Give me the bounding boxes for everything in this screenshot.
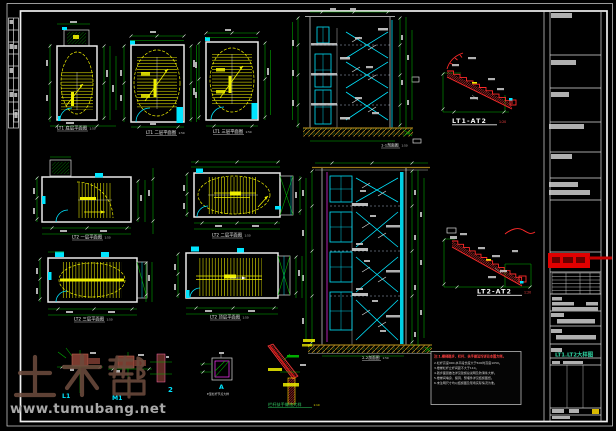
watermark-char-tu — [16, 357, 54, 395]
detail-lt1-at2 — [442, 53, 517, 114]
detail-scale-lt2-at2: 1:20 — [524, 291, 531, 295]
plan-label-p3: LT1 三层平面图 — [213, 129, 243, 135]
cad-sheet: LT1 底层平面图 1:50 LT1 二层平面图 1:50 LT1 三层平面图 … — [0, 0, 616, 431]
plan-lt2-level1 — [33, 157, 155, 234]
watermark-url-text: www.tumubang.net — [10, 401, 166, 417]
detail-label-lt1-at2: LT1-AT2 — [452, 118, 487, 125]
plan-lt1-level1 — [46, 21, 116, 128]
detail-scale-handrail: 1:10 — [314, 403, 320, 407]
detail-handrail — [268, 339, 315, 404]
detail-node-a — [200, 352, 232, 380]
plan-scale-p5: 1:50 — [245, 234, 251, 238]
section-scale-s2: 1:50 — [383, 356, 389, 360]
fold-marks-strip — [9, 18, 19, 128]
section-label-s1: 1-1剖面图 — [381, 143, 399, 148]
plan-scale-p4: 1:50 — [105, 236, 111, 240]
plan-lt2-level3 — [36, 252, 152, 316]
section-1 — [292, 8, 421, 143]
detail-label-lt2-at2: LT2-AT2 — [477, 289, 512, 296]
title-block — [544, 11, 612, 422]
section-label-s2: 2-2剖面图 — [362, 355, 380, 360]
plan-scale-p7: 1:50 — [243, 316, 249, 320]
plan-lt2-level2 — [183, 161, 302, 230]
plan-lt1-level2 — [120, 31, 197, 129]
detail-label-handrail: 栏杆扶手做法大样 — [268, 401, 302, 408]
red-stamp — [548, 253, 612, 268]
plan-scale-p3: 1:50 — [246, 130, 252, 134]
plan-label-p2: LT1 二层平面图 — [146, 130, 176, 136]
detail-caption-a: E型栏杆节点大样 — [207, 391, 229, 396]
detail-tag-l1: L1 — [62, 393, 70, 400]
detail-scale-lt1-at2: 1:20 — [499, 120, 506, 124]
plan-label-p7: LT2 顶层平面图 — [210, 315, 240, 321]
plan-lt2-top-level — [174, 247, 302, 315]
plan-scale-p6: 1:50 — [107, 318, 113, 322]
notes-title: 注:1.楼梯踏步、栏杆、扶手做法均详见本图大样。 — [434, 354, 609, 359]
plan-label-p6: LT2 三层平面图 — [74, 317, 104, 323]
detail-tag-2: 2 — [168, 386, 173, 394]
section-2 — [302, 162, 432, 357]
plan-scale-p2: 1:50 — [179, 131, 185, 135]
plan-label-p1: LT1 底层平面图 — [57, 125, 87, 132]
plan-label-p5: LT2 二层平面图 — [212, 233, 242, 239]
section-scale-s1: 1:50 — [402, 144, 408, 148]
plan-lt1-level3 — [195, 29, 271, 128]
plan-label-p4: LT2 一层平面图 — [72, 235, 102, 241]
plan-scale-p1: 1:50 — [90, 127, 96, 131]
watermark-brand — [16, 356, 144, 397]
detail-lt2-at2 — [443, 228, 536, 289]
detail-tag-a: A — [219, 384, 224, 391]
notes-body: 2.栏杆高度900,水平段长度大于500时高度1050。 3.楼梯栏杆立杆间距不… — [434, 361, 610, 386]
detail-post-node-2 — [150, 354, 172, 382]
